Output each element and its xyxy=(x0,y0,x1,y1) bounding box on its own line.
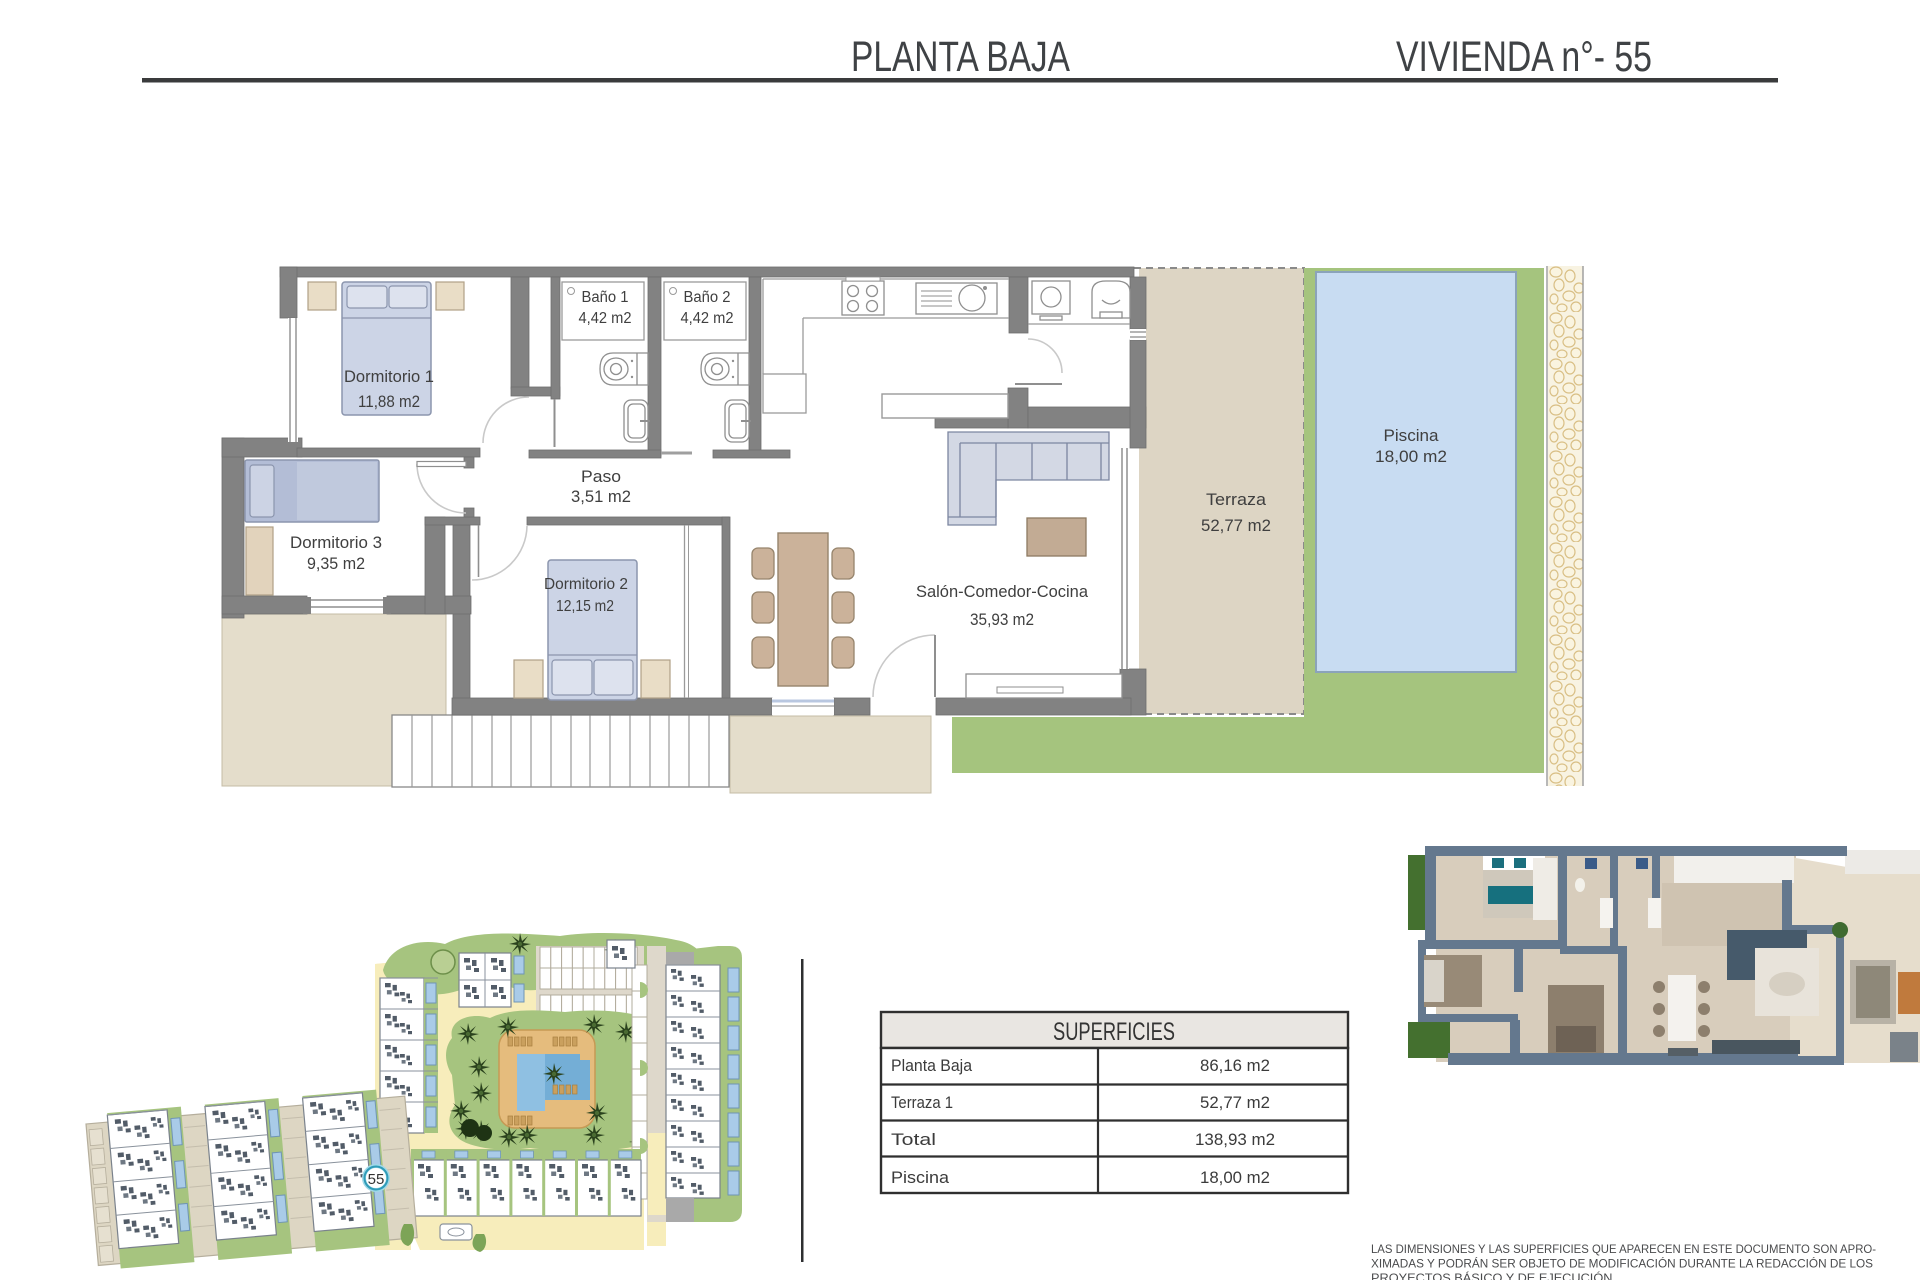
svg-text:Baño 1: Baño 1 xyxy=(582,289,629,306)
svg-text:3,51 m2: 3,51 m2 xyxy=(571,487,631,506)
svg-text:Terraza 1: Terraza 1 xyxy=(891,1093,953,1112)
svg-text:Piscina: Piscina xyxy=(891,1168,950,1187)
svg-text:11,88 m2: 11,88 m2 xyxy=(358,392,420,411)
svg-text:138,93 m2: 138,93 m2 xyxy=(1195,1130,1275,1149)
svg-text:55: 55 xyxy=(368,1171,385,1188)
svg-text:9,35 m2: 9,35 m2 xyxy=(307,554,365,573)
svg-text:Salón-Comedor-Cocina: Salón-Comedor-Cocina xyxy=(916,582,1089,601)
svg-text:Paso: Paso xyxy=(581,467,621,486)
svg-text:Baño 2: Baño 2 xyxy=(684,289,731,306)
svg-text:PLANTA BAJA: PLANTA BAJA xyxy=(851,33,1070,81)
svg-text:PROYECTOS BÁSICO Y DE EJECUCIÓ: PROYECTOS BÁSICO Y DE EJECUCIÓN. xyxy=(1371,1270,1616,1280)
svg-text:VIVIENDA n°- 55: VIVIENDA n°- 55 xyxy=(1396,33,1652,81)
svg-text:Piscina: Piscina xyxy=(1384,426,1440,445)
svg-text:Terraza: Terraza xyxy=(1206,490,1267,509)
svg-text:Dormitorio 1: Dormitorio 1 xyxy=(344,367,434,386)
svg-text:12,15 m2: 12,15 m2 xyxy=(556,598,614,615)
svg-text:86,16 m2: 86,16 m2 xyxy=(1200,1056,1270,1075)
svg-text:18,00 m2: 18,00 m2 xyxy=(1375,447,1447,466)
svg-text:18,00 m2: 18,00 m2 xyxy=(1200,1168,1270,1187)
svg-text:LAS DIMENSIONES Y LAS SUPERFIC: LAS DIMENSIONES Y LAS SUPERFICIES QUE AP… xyxy=(1371,1242,1876,1256)
svg-text:35,93 m2: 35,93 m2 xyxy=(970,610,1034,629)
svg-text:Dormitorio 3: Dormitorio 3 xyxy=(290,533,382,552)
svg-text:XIMADAS Y PODRÁN SER OBJETO DE: XIMADAS Y PODRÁN SER OBJETO DE MODIFICAC… xyxy=(1371,1256,1873,1271)
svg-text:Planta Baja: Planta Baja xyxy=(891,1056,973,1075)
svg-text:Total: Total xyxy=(891,1130,936,1149)
svg-text:4,42 m2: 4,42 m2 xyxy=(681,310,734,327)
svg-text:SUPERFICIES: SUPERFICIES xyxy=(1053,1018,1175,1046)
svg-text:Dormitorio 2: Dormitorio 2 xyxy=(544,576,628,593)
svg-text:52,77 m2: 52,77 m2 xyxy=(1201,516,1271,535)
svg-text:4,42 m2: 4,42 m2 xyxy=(579,310,632,327)
svg-text:52,77 m2: 52,77 m2 xyxy=(1200,1093,1270,1112)
